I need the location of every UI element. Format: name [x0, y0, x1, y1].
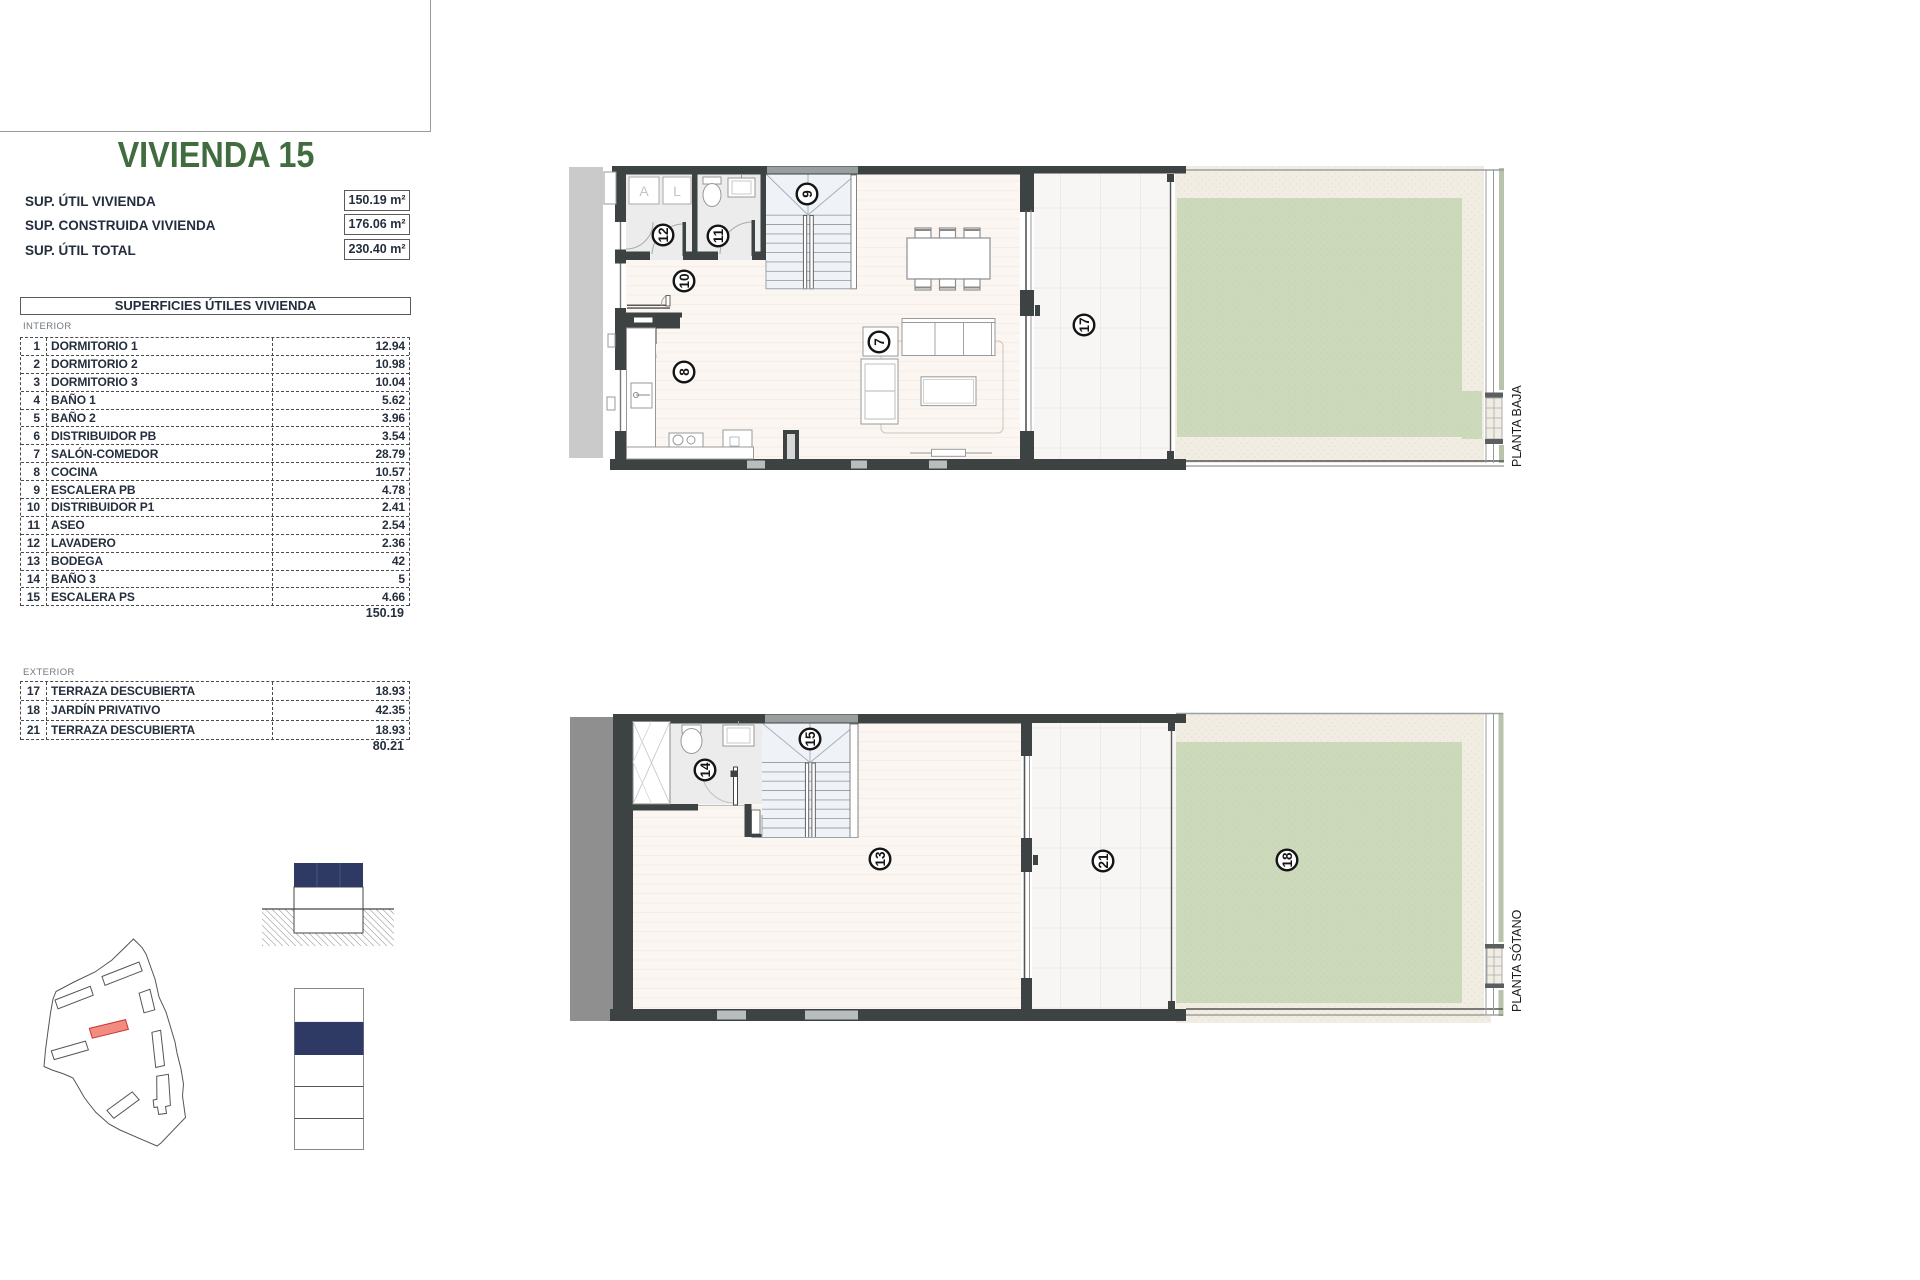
svg-text:PLANTA SÓTANO: PLANTA SÓTANO — [1509, 909, 1524, 1012]
svg-text:10: 10 — [677, 273, 692, 288]
svg-text:9: 9 — [800, 190, 815, 198]
svg-text:PLANTA BAJA: PLANTA BAJA — [1510, 385, 1524, 467]
svg-text:L: L — [673, 183, 681, 199]
svg-text:18: 18 — [1280, 852, 1295, 868]
svg-text:13: 13 — [873, 851, 888, 867]
svg-text:14: 14 — [698, 762, 713, 778]
svg-text:A: A — [639, 183, 649, 199]
svg-text:15: 15 — [803, 731, 818, 747]
svg-text:8: 8 — [677, 368, 692, 376]
svg-text:17: 17 — [1077, 317, 1092, 332]
svg-text:11: 11 — [711, 228, 726, 243]
svg-text:21: 21 — [1096, 853, 1111, 869]
svg-text:12: 12 — [656, 227, 671, 242]
svg-text:7: 7 — [872, 338, 887, 346]
